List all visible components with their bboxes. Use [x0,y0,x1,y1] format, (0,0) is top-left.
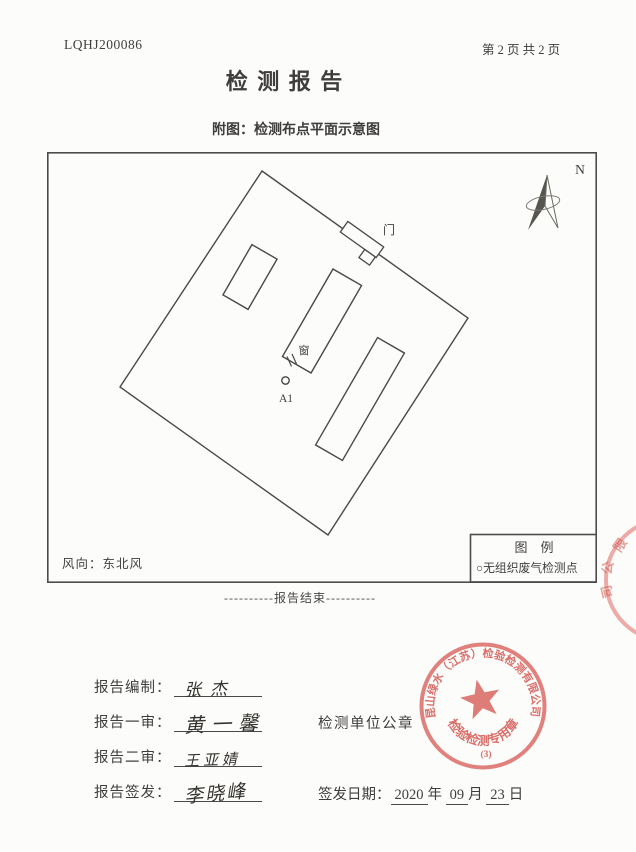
north-arrow-icon [525,175,561,230]
building-1 [223,245,277,310]
signature-row-second-review: 报告二审： 王亚婧 [94,746,262,767]
unit-seal-caption: 检测单位公章 [318,712,414,733]
report-page: LQHJ200086 第 2 页 共 2 页 检 测 报 告 附图：检测布点平面… [0,0,636,852]
document-subtitle: 附图：检测布点平面示意图 [0,119,592,139]
site-plan-diagram: 门 窗 A1 N 风向：东北风 图 例 ○无组织废气检测点 [47,152,597,583]
door-label: 门 [383,222,395,237]
document-title: 检 测 报 告 [0,64,570,96]
sampling-point-marker [282,377,289,384]
second-review-signature: 王亚婧 [183,748,241,771]
page-number-indicator: 第 2 页 共 2 页 [482,39,560,58]
first-review-signature-line: 黄一馨 [174,712,262,732]
second-review-label: 报告二审： [94,746,172,767]
prepared-by-signature: 张杰 [183,674,236,701]
sampling-point-label: A1 [279,393,293,405]
building-2 [282,269,361,373]
report-end-marker: ----------报告结束---------- [0,589,600,606]
window-mark [287,354,297,367]
signature-row-issued-by: 报告签发： 李晓峰 [94,781,262,802]
diagram-frame [48,153,596,582]
window-label: 窗 [299,343,310,357]
issued-by-label: 报告签发： [94,781,172,802]
second-review-signature-line: 王亚婧 [174,747,262,767]
issued-by-signature-line: 李晓峰 [174,782,262,802]
wind-direction-label: 风向：东北风 [62,556,143,571]
edge-seal-ring [606,519,636,640]
first-review-label: 报告一审： [94,711,172,732]
factory-boundary [120,171,468,535]
prepared-by-signature-line: 张杰 [174,677,262,697]
signature-row-prepared-by: 报告编制： 张杰 [94,676,262,697]
legend-item-fugitive-gas-point: ○无组织废气检测点 [476,561,578,575]
first-review-signature: 黄一馨 [183,707,265,739]
north-label: N [575,162,585,177]
seal-number: (3) [480,749,491,760]
edge-seal-char-2: 公 [599,560,616,575]
company-seal-stamp: 昆山绿水（江苏）检验检测有限公司 检验检测专用章 (3) [402,628,578,790]
edge-seal-char-3: 司 [598,584,616,600]
building-3 [316,338,405,461]
report-number: LQHJ200086 [64,37,143,53]
issued-by-signature: 李晓峰 [182,776,247,808]
edge-paging-seal-stamp: 限 公 司 [596,518,636,640]
legend-title: 图 例 [514,540,553,555]
seal-type-text: 检验检测专用章 [445,715,522,748]
issue-date-label: 签发日期： [318,787,391,803]
prepared-by-label: 报告编制： [94,676,172,697]
seal-star-icon [460,680,499,720]
signature-row-first-review: 报告一审： 黄一馨 [94,711,262,732]
svg-text:检验检测专用章: 检验检测专用章 [445,715,522,748]
